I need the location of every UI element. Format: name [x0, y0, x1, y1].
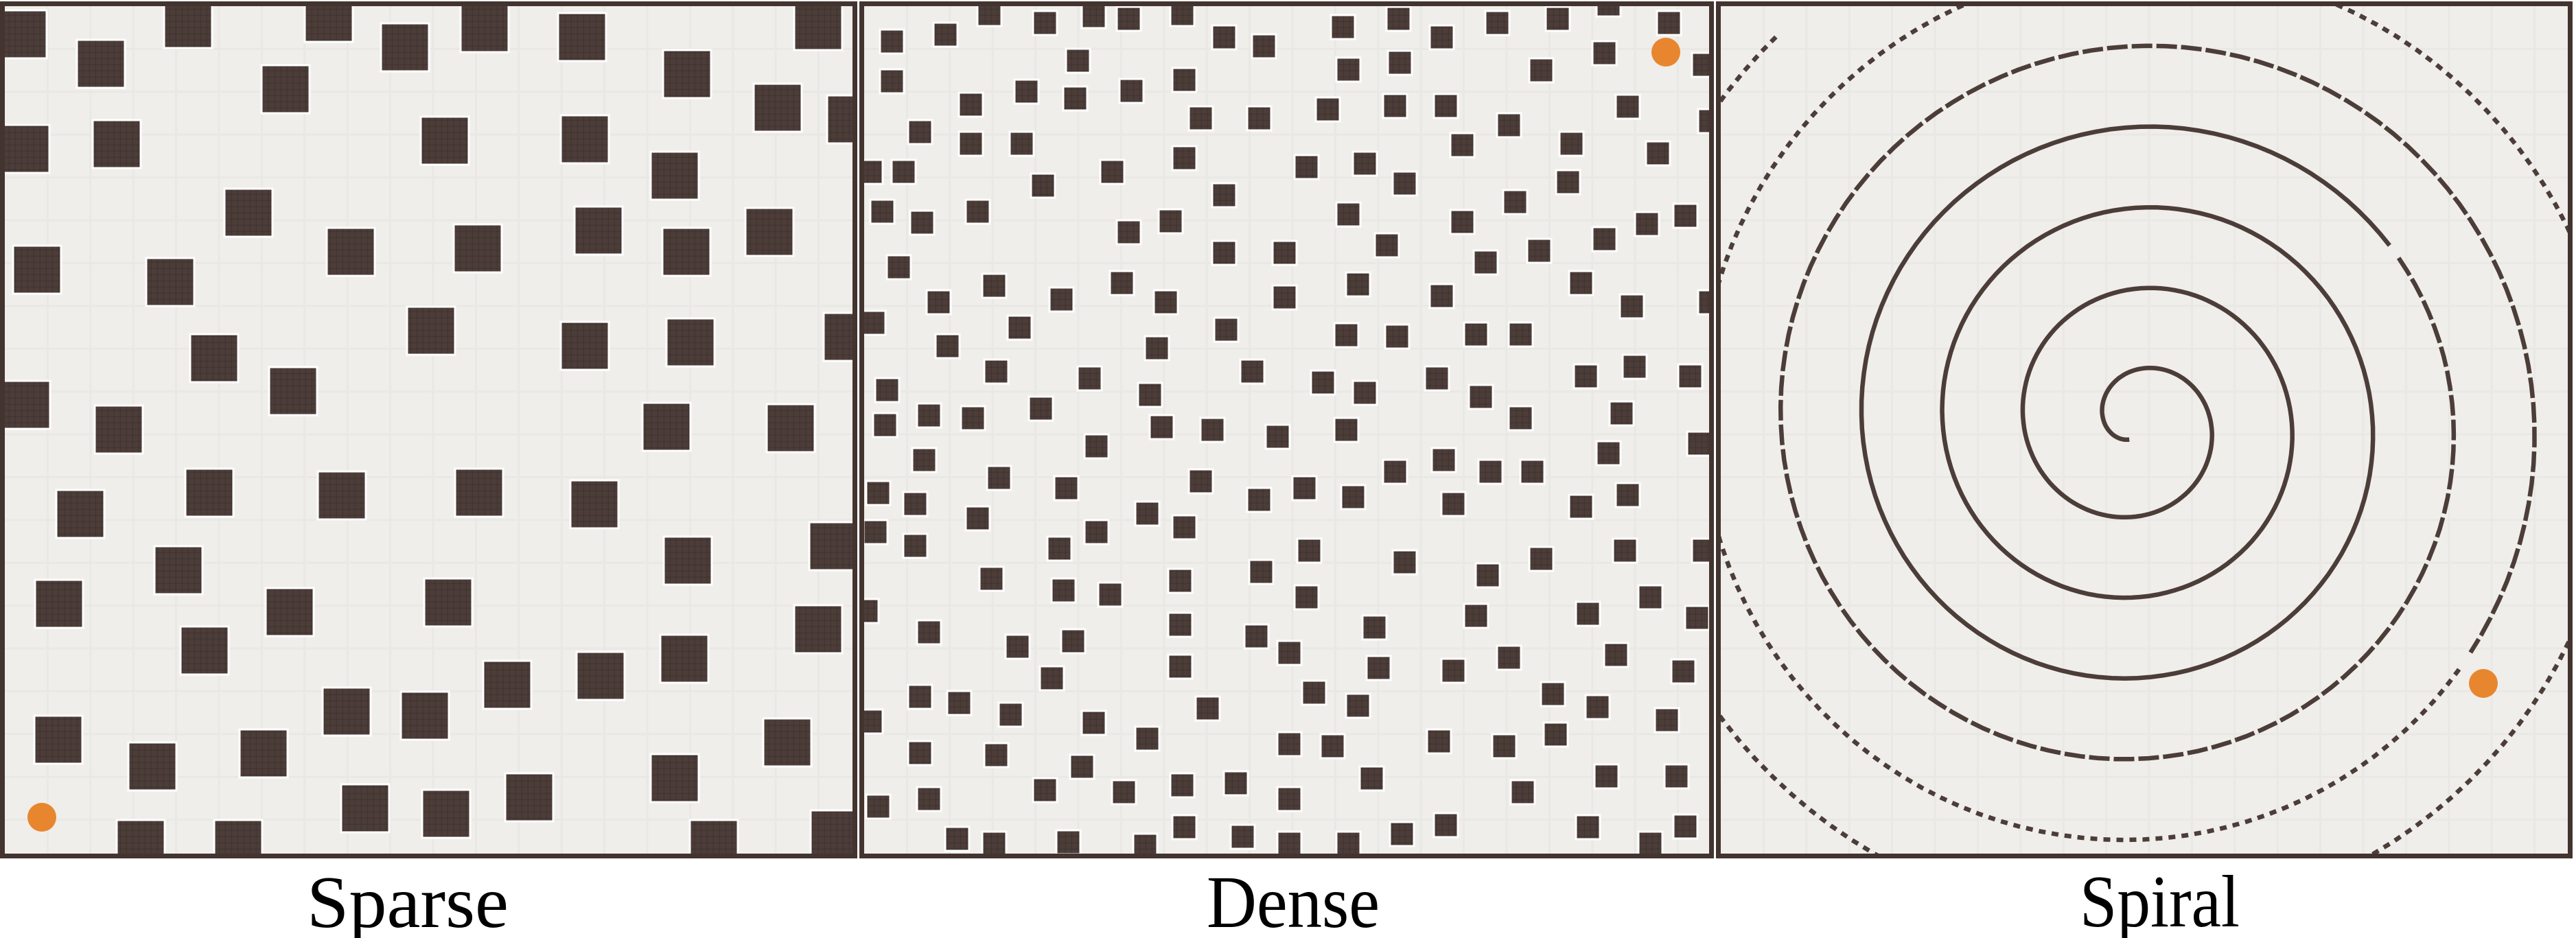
svg-text:Spiral: Spiral [2080, 861, 2240, 938]
svg-text:Sparse: Sparse [307, 862, 509, 938]
svg-text:Dense: Dense [1207, 862, 1380, 938]
